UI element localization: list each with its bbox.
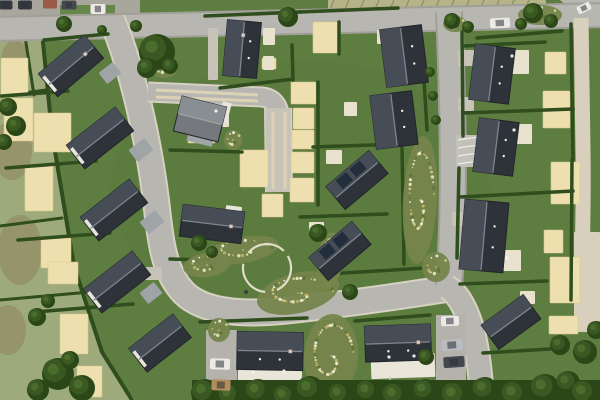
flower-speck bbox=[409, 178, 412, 181]
flower-speck bbox=[226, 243, 228, 245]
flower-speck bbox=[314, 279, 316, 281]
gravel-pad bbox=[551, 162, 580, 204]
flower-speck bbox=[335, 360, 337, 362]
tree-highlight bbox=[433, 117, 436, 120]
tree-highlight bbox=[165, 61, 170, 66]
house bbox=[380, 25, 429, 88]
flower-speck bbox=[215, 322, 217, 324]
gravel-pad bbox=[549, 316, 578, 334]
flower-speck bbox=[302, 277, 306, 281]
gravel-pad bbox=[293, 108, 314, 129]
flower-speck bbox=[346, 333, 349, 336]
road bbox=[449, 12, 453, 286]
flower-speck bbox=[161, 71, 164, 74]
flower-speck bbox=[408, 183, 411, 186]
flower-speck bbox=[418, 152, 421, 155]
flower-speck bbox=[325, 326, 328, 329]
flower-speck bbox=[426, 264, 428, 266]
flower-speck bbox=[241, 254, 244, 257]
flower-speck bbox=[197, 268, 199, 270]
flower-speck bbox=[191, 263, 193, 265]
tree-highlight bbox=[506, 386, 516, 396]
flower-speck bbox=[410, 215, 414, 219]
flower-speck bbox=[409, 201, 411, 203]
flower-speck bbox=[192, 260, 195, 263]
flower-speck bbox=[412, 167, 414, 169]
flower-speck bbox=[409, 197, 411, 199]
flower-speck bbox=[414, 160, 416, 162]
tree-highlight bbox=[196, 384, 206, 394]
flower-speck bbox=[198, 257, 200, 259]
flower-speck bbox=[279, 282, 281, 284]
flower-speck bbox=[270, 246, 274, 250]
flower-speck bbox=[314, 357, 316, 359]
flower-speck bbox=[422, 212, 424, 214]
road bbox=[0, 15, 600, 29]
tree-highlight bbox=[576, 385, 586, 395]
flower-speck bbox=[219, 331, 223, 335]
flower-speck bbox=[209, 268, 211, 270]
flower-speck bbox=[232, 131, 235, 134]
house bbox=[179, 204, 244, 243]
tree-highlight bbox=[345, 287, 350, 292]
flower-speck bbox=[283, 280, 285, 282]
gravel-pad bbox=[34, 113, 71, 152]
garden-hedge bbox=[571, 24, 573, 160]
flower-speck bbox=[321, 371, 324, 374]
farm-shed bbox=[43, 0, 57, 9]
garden-hedge bbox=[571, 160, 572, 300]
flower-speck bbox=[221, 244, 224, 247]
house bbox=[459, 199, 509, 273]
flower-speck bbox=[220, 248, 222, 250]
flower-speck bbox=[157, 70, 159, 72]
parked-vehicle bbox=[211, 379, 230, 391]
flower-speck bbox=[193, 266, 196, 269]
flower-speck bbox=[429, 271, 431, 273]
flower-speck bbox=[408, 187, 411, 190]
gravel-pad bbox=[25, 165, 53, 211]
parked-vehicle bbox=[210, 358, 230, 370]
chimney bbox=[241, 33, 245, 37]
flower-speck bbox=[430, 171, 433, 174]
tree-highlight bbox=[141, 62, 148, 69]
tree-highlight bbox=[301, 381, 311, 391]
flower-speck bbox=[283, 299, 286, 302]
flower-speck bbox=[314, 344, 317, 347]
site-plan-canvas bbox=[0, 0, 600, 400]
gravel-pad bbox=[290, 178, 314, 202]
flower-speck bbox=[409, 174, 413, 178]
tree-highlight bbox=[31, 311, 37, 317]
flower-speck bbox=[223, 251, 226, 254]
tree-highlight bbox=[10, 120, 17, 127]
flower-speck bbox=[304, 293, 307, 296]
flower-speck bbox=[411, 219, 414, 222]
flower-speck bbox=[214, 333, 216, 335]
tree-highlight bbox=[527, 7, 534, 14]
vehicle-windshield bbox=[495, 20, 504, 27]
flower-speck bbox=[339, 326, 341, 328]
flower-speck bbox=[330, 355, 332, 357]
vehicle-windshield bbox=[215, 360, 224, 367]
garden-hedge bbox=[457, 168, 459, 258]
flower-speck bbox=[299, 277, 302, 280]
flower-speck bbox=[292, 277, 295, 280]
gravel-pad bbox=[291, 152, 314, 173]
patio bbox=[326, 150, 342, 164]
flower-speck bbox=[543, 14, 545, 16]
flower-speck bbox=[311, 278, 313, 280]
flower-speck bbox=[414, 157, 416, 159]
garden-hedge bbox=[292, 45, 293, 80]
vehicle-windshield bbox=[217, 381, 225, 388]
tree-highlight bbox=[332, 387, 340, 395]
flower-speck bbox=[421, 219, 424, 222]
garden-hedge bbox=[170, 150, 242, 152]
gravel-pad bbox=[313, 22, 340, 53]
chimney bbox=[416, 340, 420, 344]
flower-speck bbox=[334, 368, 337, 371]
garden-object bbox=[244, 290, 248, 294]
flower-speck bbox=[329, 373, 331, 375]
flower-speck bbox=[210, 265, 212, 267]
flower-speck bbox=[300, 299, 303, 302]
flower-speck bbox=[278, 298, 281, 301]
flower-speck bbox=[410, 209, 412, 211]
patio bbox=[344, 102, 357, 116]
flower-speck bbox=[317, 365, 321, 369]
tree-highlight bbox=[208, 248, 212, 252]
flower-speck bbox=[238, 134, 241, 137]
flower-speck bbox=[203, 269, 206, 272]
tree-highlight bbox=[145, 40, 157, 52]
flower-speck bbox=[415, 226, 417, 228]
parked-vehicle bbox=[0, 1, 13, 10]
tree-highlight bbox=[59, 19, 64, 24]
flower-speck bbox=[422, 204, 425, 207]
tree-highlight bbox=[427, 69, 430, 72]
vehicle-windshield bbox=[22, 2, 28, 8]
flower-speck bbox=[332, 370, 335, 373]
garden-furniture bbox=[412, 354, 415, 357]
flower-speck bbox=[426, 157, 428, 159]
flower-speck bbox=[274, 284, 278, 288]
flower-speck bbox=[332, 290, 334, 292]
flower-speck bbox=[341, 327, 343, 329]
flower-speck bbox=[421, 200, 424, 203]
garden-hedge bbox=[462, 30, 463, 136]
tree-highlight bbox=[282, 11, 289, 18]
roof-light-face bbox=[237, 331, 303, 351]
flower-speck bbox=[229, 133, 231, 135]
flower-speck bbox=[237, 254, 240, 257]
flower-speck bbox=[333, 356, 336, 359]
flower-speck bbox=[352, 351, 354, 353]
flower-speck bbox=[218, 320, 221, 323]
house bbox=[237, 331, 304, 370]
house bbox=[370, 91, 418, 150]
flower-speck bbox=[423, 153, 425, 155]
flower-speck bbox=[225, 323, 228, 326]
flower-speck bbox=[319, 331, 321, 333]
flower-speck bbox=[316, 362, 318, 364]
flower-speck bbox=[324, 372, 326, 374]
flower-speck bbox=[321, 329, 323, 331]
vehicle-windshield bbox=[449, 358, 458, 366]
flower-speck bbox=[427, 269, 430, 272]
gravel-pad bbox=[1, 58, 28, 95]
aerial-housing-development-render bbox=[0, 0, 600, 400]
flower-speck bbox=[432, 181, 434, 183]
parked-vehicle bbox=[91, 4, 106, 14]
garden-furniture bbox=[387, 355, 390, 358]
parked-vehicle bbox=[18, 1, 32, 10]
tree-highlight bbox=[554, 339, 561, 346]
parked-vehicle bbox=[490, 17, 510, 28]
garden-furniture bbox=[505, 256, 508, 259]
parked-vehicle bbox=[441, 339, 463, 351]
flower-speck bbox=[295, 277, 298, 280]
flower-speck bbox=[435, 266, 437, 268]
flower-speck bbox=[422, 209, 425, 212]
tree-highlight bbox=[464, 23, 468, 27]
flower-speck bbox=[272, 288, 275, 291]
tree-highlight bbox=[44, 297, 49, 302]
flower-speck bbox=[230, 143, 233, 146]
tree-highlight bbox=[2, 101, 8, 107]
tree-highlight bbox=[417, 383, 425, 391]
tree-highlight bbox=[535, 379, 545, 389]
tree-highlight bbox=[64, 354, 70, 360]
flower-speck bbox=[336, 325, 338, 327]
flower-speck bbox=[254, 240, 256, 242]
flower-speck bbox=[410, 212, 413, 215]
flower-speck bbox=[413, 223, 416, 226]
garden-furniture bbox=[214, 109, 217, 112]
vehicle-windshield bbox=[446, 318, 454, 325]
parked-vehicle bbox=[443, 356, 465, 368]
flower-speck bbox=[432, 186, 436, 190]
flower-speck bbox=[333, 323, 337, 327]
tree-highlight bbox=[31, 383, 38, 390]
flower-speck bbox=[462, 19, 465, 22]
patio bbox=[263, 56, 274, 70]
flower-speck bbox=[211, 328, 213, 330]
gravel-pad bbox=[550, 257, 580, 303]
flower-speck bbox=[274, 295, 276, 297]
gravel-pad bbox=[292, 130, 314, 149]
gravel-pad bbox=[48, 262, 78, 284]
driveway-stub bbox=[208, 28, 218, 80]
flower-speck bbox=[335, 364, 337, 366]
tree-highlight bbox=[360, 384, 368, 392]
flower-speck bbox=[554, 9, 557, 12]
vehicle-windshield bbox=[95, 6, 101, 12]
parked-vehicle bbox=[62, 1, 77, 10]
flower-speck bbox=[420, 223, 423, 226]
flower-speck bbox=[315, 338, 319, 342]
court-drive bbox=[278, 108, 279, 192]
house bbox=[473, 118, 519, 176]
flower-speck bbox=[418, 227, 420, 229]
garden-furniture bbox=[512, 128, 515, 131]
flower-speck bbox=[349, 339, 352, 342]
tree-highlight bbox=[312, 227, 318, 233]
flower-speck bbox=[244, 239, 247, 242]
vehicle-windshield bbox=[3, 2, 8, 8]
flower-speck bbox=[297, 292, 299, 294]
flower-speck bbox=[428, 162, 430, 164]
chimney bbox=[288, 350, 292, 354]
garden-furniture bbox=[251, 370, 254, 373]
flower-speck bbox=[315, 359, 317, 361]
flower-speck bbox=[314, 353, 316, 355]
gravel-pad bbox=[262, 194, 283, 217]
flower-speck bbox=[425, 155, 427, 157]
tree-highlight bbox=[447, 16, 452, 21]
flower-speck bbox=[314, 347, 317, 350]
vehicle-windshield bbox=[66, 2, 72, 8]
flower-speck bbox=[437, 267, 439, 269]
tree-highlight bbox=[277, 389, 285, 397]
flower-speck bbox=[296, 300, 299, 303]
tree-highlight bbox=[590, 324, 596, 330]
gravel-pad bbox=[544, 230, 563, 253]
flower-speck bbox=[329, 324, 332, 327]
flower-speck bbox=[221, 250, 223, 252]
patio bbox=[263, 28, 275, 45]
footpath bbox=[581, 18, 583, 302]
flower-speck bbox=[435, 254, 438, 257]
tree-highlight bbox=[560, 375, 568, 383]
flower-speck bbox=[242, 249, 244, 251]
parked-vehicle bbox=[441, 316, 459, 327]
flower-speck bbox=[216, 334, 219, 337]
gravel-pad bbox=[291, 82, 316, 104]
garden-furniture bbox=[282, 369, 285, 372]
garden-furniture bbox=[510, 54, 513, 57]
tree-highlight bbox=[577, 344, 585, 352]
flower-speck bbox=[431, 257, 433, 259]
flower-speck bbox=[409, 192, 411, 194]
flower-speck bbox=[433, 272, 436, 275]
flower-speck bbox=[232, 254, 234, 256]
flower-speck bbox=[272, 293, 274, 295]
tree-highlight bbox=[446, 387, 456, 397]
tree-highlight bbox=[48, 364, 59, 375]
flower-speck bbox=[412, 163, 414, 165]
flower-speck bbox=[232, 139, 234, 141]
flower-speck bbox=[300, 292, 302, 294]
flower-speck bbox=[318, 334, 320, 336]
flower-speck bbox=[218, 329, 220, 331]
tree-highlight bbox=[547, 17, 552, 22]
flower-speck bbox=[227, 138, 229, 140]
tree-highlight bbox=[194, 238, 199, 243]
driveway-stub bbox=[458, 50, 474, 66]
chimney bbox=[229, 224, 233, 228]
tree-highlight bbox=[99, 27, 102, 30]
flower-speck bbox=[206, 264, 208, 266]
flower-speck bbox=[351, 343, 353, 345]
tree-highlight bbox=[477, 382, 486, 391]
flower-speck bbox=[228, 253, 230, 255]
gravel-pad bbox=[545, 52, 566, 74]
flower-speck bbox=[305, 296, 307, 298]
vehicle-windshield bbox=[447, 341, 456, 349]
tree-highlight bbox=[387, 388, 396, 397]
flower-speck bbox=[348, 336, 351, 339]
flower-speck bbox=[314, 351, 316, 353]
gravel-pad bbox=[60, 314, 88, 354]
house bbox=[223, 20, 262, 79]
flower-speck bbox=[285, 300, 287, 302]
tree-highlight bbox=[132, 22, 136, 26]
tree-highlight bbox=[250, 384, 259, 393]
house bbox=[469, 44, 516, 104]
tree-highlight bbox=[74, 380, 83, 389]
tree-highlight bbox=[517, 20, 521, 24]
flower-speck bbox=[444, 259, 447, 262]
flower-speck bbox=[433, 193, 435, 195]
tree-highlight bbox=[430, 93, 433, 96]
flower-speck bbox=[304, 298, 306, 300]
flower-speck bbox=[437, 269, 441, 273]
flower-speck bbox=[291, 300, 294, 303]
flower-speck bbox=[246, 254, 248, 256]
flower-speck bbox=[431, 175, 434, 178]
flower-speck bbox=[351, 346, 355, 350]
roof-light-face bbox=[364, 324, 431, 344]
flower-speck bbox=[345, 331, 347, 333]
gravel-pad bbox=[240, 150, 268, 187]
flower-speck bbox=[290, 301, 292, 303]
tree-highlight bbox=[421, 352, 426, 357]
flower-speck bbox=[429, 166, 432, 169]
